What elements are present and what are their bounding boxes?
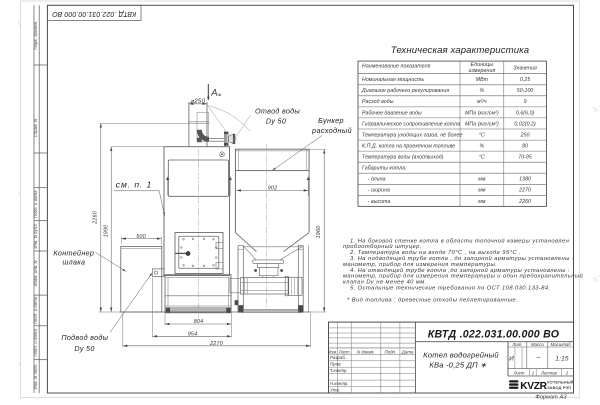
- svg-text:Подп. и дата: Подп. и дата: [33, 190, 38, 218]
- svg-text:Инв. N дубл.: Инв. N дубл.: [33, 223, 38, 248]
- svg-text:Масштаб: Масштаб: [551, 342, 572, 347]
- svg-text:Утв.: Утв.: [330, 387, 340, 392]
- svg-text:шлака: шлака: [62, 258, 85, 267]
- svg-text:И: И: [509, 356, 514, 363]
- svg-text:1960: 1960: [316, 226, 322, 239]
- svg-text:КВТД .022.031.00.000 ВО: КВТД .022.031.00.000 ВО: [52, 10, 137, 17]
- svg-text:Лист: Лист: [512, 370, 524, 375]
- svg-text:Значения: Значения: [513, 66, 537, 72]
- svg-text:Подп. и дата: Подп. и дата: [33, 296, 38, 324]
- svg-text:KVZR: KVZR: [520, 381, 547, 392]
- svg-text:мм: мм: [478, 177, 486, 183]
- svg-text:Наименование показателя: Наименование показателя: [362, 64, 431, 70]
- svg-text:Изм.: Изм.: [328, 350, 337, 355]
- svg-text:Разраб.: Разраб.: [330, 355, 346, 360]
- svg-text:1990: 1990: [103, 225, 109, 238]
- svg-text:МПа (кгс/см²): МПа (кгс/см²): [465, 110, 499, 116]
- svg-text:Листов: Листов: [540, 370, 557, 375]
- svg-text:А: А: [210, 87, 217, 98]
- svg-text:kvzr.ru: kvzr.ru: [591, 259, 600, 285]
- svg-text:1:15: 1:15: [555, 356, 569, 363]
- svg-text:Котел водогрейный: Котел водогрейный: [423, 351, 499, 360]
- svg-text:2260: 2260: [518, 199, 531, 205]
- svg-text:Отвод воды: Отвод воды: [255, 106, 300, 115]
- svg-text:Гидравлическое сопротивление к: Гидравлическое сопротивление котла: [362, 121, 460, 127]
- svg-text:измерения: измерения: [468, 68, 495, 74]
- svg-text:0,02(0,2): 0,02(0,2): [514, 121, 536, 127]
- svg-text:Лит.: Лит.: [511, 342, 522, 347]
- svg-text:Пров.: Пров.: [330, 362, 342, 367]
- svg-text:Взам. инв. N: Взам. инв. N: [33, 259, 38, 285]
- svg-text:80: 80: [522, 144, 528, 150]
- svg-text:500: 500: [136, 234, 146, 240]
- svg-text:см. п. 1: см. п. 1: [116, 180, 152, 190]
- svg-text:м³/ч: м³/ч: [477, 99, 487, 105]
- svg-text:* Вид топлива : древесные отх: * Вид топлива : древесные отходы пеллети…: [347, 297, 518, 303]
- svg-text:мм: мм: [478, 199, 486, 205]
- svg-text:- длина: - длина: [368, 177, 386, 183]
- svg-text:Техническая характеристика: Техническая характеристика: [391, 45, 529, 56]
- svg-text:70-95: 70-95: [518, 155, 532, 161]
- svg-text:2270: 2270: [518, 188, 531, 194]
- svg-text:Dy 50: Dy 50: [266, 116, 286, 125]
- svg-text:Подп. и дата: Подп. и дата: [33, 329, 38, 357]
- svg-text:Н.контр.: Н.контр.: [330, 381, 349, 386]
- svg-text:Дата: Дата: [401, 350, 414, 355]
- svg-text:Температура воды (вход/выход): Температура воды (вход/выход): [362, 155, 444, 161]
- svg-text:- высота: - высота: [368, 199, 391, 205]
- svg-text:Лист: Лист: [338, 350, 350, 355]
- svg-text:Бункер: Бункер: [318, 116, 344, 125]
- svg-text:250: 250: [520, 132, 530, 138]
- svg-text:расходный: расходный: [311, 126, 352, 135]
- svg-text:КВа -0,25 ДП ∗: КВа -0,25 ДП ∗: [429, 361, 487, 370]
- svg-text:Справ. N: Справ. N: [33, 118, 38, 137]
- svg-text:5. Остальные технические треб: 5. Остальные технические требования по О…: [350, 286, 551, 292]
- svg-text:1380: 1380: [519, 177, 531, 183]
- svg-text:954: 954: [188, 332, 198, 338]
- svg-text:50-100: 50-100: [517, 88, 534, 94]
- svg-text:Масса: Масса: [531, 342, 544, 347]
- svg-text:°С: °С: [479, 132, 485, 138]
- svg-text:Т.контр.: Т.контр.: [330, 368, 348, 373]
- svg-text:Рабочее давление воды: Рабочее давление воды: [362, 110, 422, 116]
- svg-text:мм: мм: [478, 188, 486, 194]
- svg-text:Инв. N подл.: Инв. N подл.: [33, 364, 38, 390]
- svg-text:902: 902: [268, 186, 278, 192]
- svg-text:%: %: [480, 144, 485, 150]
- svg-text:МВт: МВт: [476, 77, 489, 83]
- svg-text:Подвод воды: Подвод воды: [61, 333, 108, 342]
- svg-text:Подп.: Подп.: [384, 350, 396, 355]
- svg-text:°С: °С: [479, 155, 485, 161]
- svg-text:Температура уходящих газов, не: Температура уходящих газов, не более: [362, 132, 462, 138]
- svg-text:kvzr.ru: kvzr.ru: [591, 89, 600, 115]
- svg-text:N докум.: N докум.: [357, 350, 375, 355]
- svg-text:- ширина: - ширина: [368, 188, 391, 194]
- svg-text:Габариты котла:: Габариты котла:: [362, 166, 407, 172]
- svg-text:%: %: [480, 88, 485, 94]
- svg-text:Перв. примен.: Перв. примен.: [33, 21, 38, 50]
- svg-text:ш: ш: [218, 92, 222, 97]
- svg-text:804: 804: [194, 319, 204, 325]
- svg-text:2270: 2270: [209, 341, 223, 347]
- svg-text:9: 9: [524, 99, 527, 105]
- svg-text:0,6(6,0): 0,6(6,0): [516, 110, 535, 116]
- svg-text:Формат А3: Формат А3: [535, 394, 566, 400]
- svg-text:Диапазон рабочего регулировани: Диапазон рабочего регулирования: [361, 88, 449, 94]
- svg-text:Dy 50: Dy 50: [74, 344, 94, 353]
- svg-text:пробоотборный штуцер.: пробоотборный штуцер.: [343, 243, 422, 250]
- svg-text:Контейнер: Контейнер: [53, 248, 94, 257]
- svg-text:0,25: 0,25: [520, 77, 530, 83]
- svg-text:–: –: [536, 354, 541, 361]
- svg-text:2260: 2260: [93, 211, 99, 225]
- svg-text:КОТЕЛЬНЫЙ: КОТЕЛЬНЫЙ: [547, 380, 573, 385]
- svg-text:К.П.Д. котла на проектном топл: К.П.Д. котла на проектном топливе: [362, 144, 455, 150]
- svg-text:КВТД .022.031.00.000 ВО: КВТД .022.031.00.000 ВО: [428, 328, 560, 340]
- svg-text:ЗАВОД РЭП: ЗАВОД РЭП: [547, 385, 571, 390]
- svg-text:Расход воды: Расход воды: [362, 99, 394, 105]
- svg-text:МПа (кгс/см²): МПа (кгс/см²): [465, 121, 499, 127]
- svg-text:Номинальная мощность: Номинальная мощность: [362, 77, 424, 83]
